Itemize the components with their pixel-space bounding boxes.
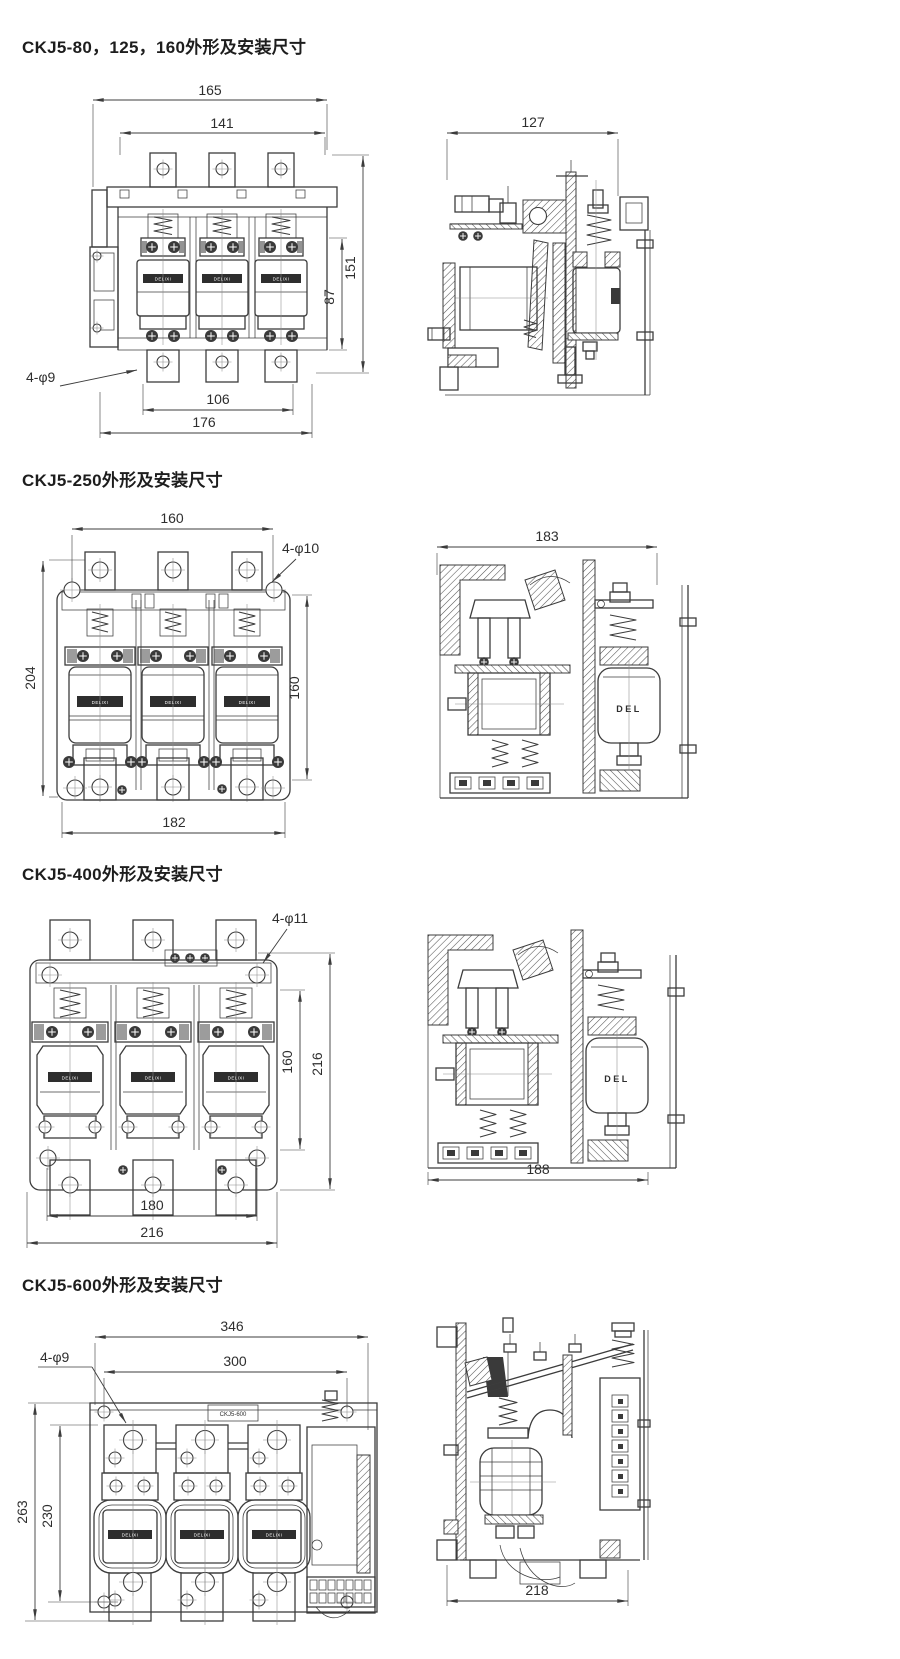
dim-label: 230 xyxy=(39,1504,55,1528)
dim-label: 127 xyxy=(521,114,545,130)
technical-drawings: DELIXI DELIXI xyxy=(0,0,900,1659)
dim-inner-height-87: 87 xyxy=(321,238,347,350)
dim-label: 165 xyxy=(198,82,222,98)
section-ckj5-80-side-view xyxy=(428,160,653,395)
hole-callout-4-phi11: 4-φ11 xyxy=(263,910,308,963)
dim-label: 87 xyxy=(321,289,337,305)
dim-label: 160 xyxy=(286,676,302,700)
dim-height-263: 263 xyxy=(14,1403,118,1621)
section-ckj5-400-front-view xyxy=(30,920,277,1220)
dim-label: 216 xyxy=(309,1052,325,1076)
hole-callout-label: 4-φ10 xyxy=(282,540,319,556)
dim-mount-height-160: 160 xyxy=(279,990,305,1150)
dim-mount-width-141: 141 xyxy=(120,115,325,155)
hole-callout-label: 4-φ9 xyxy=(40,1349,70,1365)
dim-label: 216 xyxy=(140,1224,164,1240)
dim-label: 141 xyxy=(210,115,234,131)
section-ckj5-600-front-view: CKJ5-600 xyxy=(90,1391,377,1625)
dim-label: 346 xyxy=(220,1318,244,1334)
dim-label: 106 xyxy=(206,391,230,407)
device-model-label: CKJ5-600 xyxy=(220,1412,247,1418)
hole-callout-label: 4-φ9 xyxy=(26,369,56,385)
dim-label: 180 xyxy=(140,1197,164,1213)
dim-label: 182 xyxy=(162,814,186,830)
hole-callout-4-phi9: 4-φ9 xyxy=(26,369,137,386)
section-ckj5-250-side-view xyxy=(440,560,696,798)
dim-label: 263 xyxy=(14,1500,30,1524)
section-ckj5-80-front-view xyxy=(90,153,337,382)
section-ckj5-600-side-view xyxy=(437,1318,650,1587)
dim-depth-218: 218 xyxy=(447,1565,628,1606)
dim-label: 176 xyxy=(192,414,216,430)
dim-label: 300 xyxy=(223,1353,247,1369)
dim-mount-width-300: 300 xyxy=(104,1353,347,1408)
dim-label: 151 xyxy=(342,256,358,280)
section-ckj5-400-side-view xyxy=(428,930,684,1168)
dim-bottom-182: 182 xyxy=(62,802,285,838)
dim-label: 204 xyxy=(22,666,38,690)
dim-mount-height-230: 230 xyxy=(39,1425,118,1602)
dim-label: 218 xyxy=(525,1582,549,1598)
dim-label: 160 xyxy=(160,510,184,526)
dim-overall-width-165: 165 xyxy=(93,82,327,187)
dim-bottom-mount-106: 106 xyxy=(143,384,293,415)
dim-depth-188: 188 xyxy=(428,1161,648,1185)
hole-callout-label: 4-φ11 xyxy=(272,910,308,926)
dim-depth-127: 127 xyxy=(447,114,618,196)
dim-label: 183 xyxy=(535,528,559,544)
dim-bottom-mount-180: 180 xyxy=(47,1168,257,1221)
dim-label: 188 xyxy=(526,1161,550,1177)
hole-callout-4-phi10: 4-φ10 xyxy=(272,540,319,582)
dim-height-151: 151 xyxy=(316,155,369,373)
datasheet-page: CKJ5-80，125，160外形及安装尺寸 CKJ5-250外形及安装尺寸 C… xyxy=(0,0,900,1659)
section-ckj5-250-front-view xyxy=(57,552,290,802)
dim-label: 160 xyxy=(279,1050,295,1074)
